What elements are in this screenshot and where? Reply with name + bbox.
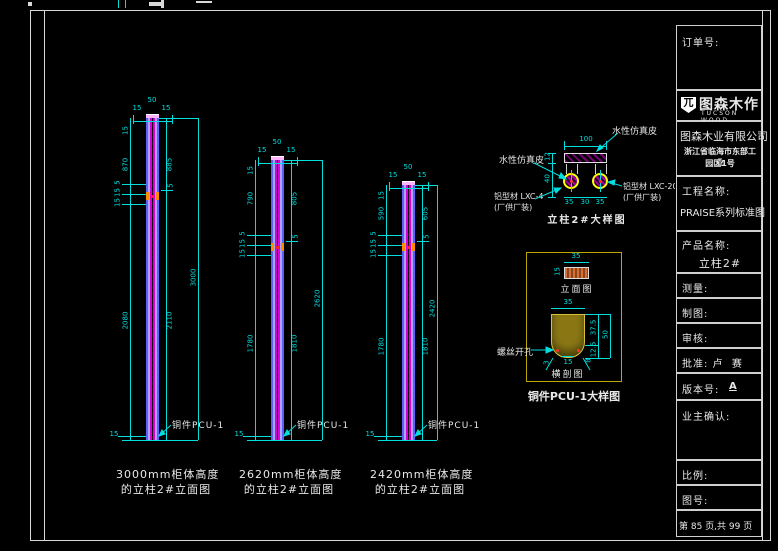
dim-text: 100 xyxy=(571,136,601,143)
dim-text: 15 xyxy=(158,105,174,112)
dim-line xyxy=(130,118,131,440)
column-caption-line2: 的立柱2#立面图 xyxy=(116,483,216,496)
version-value: A xyxy=(729,381,737,392)
column-caption-line2: 的立柱2#立面图 xyxy=(239,483,339,496)
dim-line xyxy=(378,440,437,441)
lxc-left-label2: (厂供厂装) xyxy=(494,202,532,213)
dim-line xyxy=(159,118,198,119)
dim-line xyxy=(255,160,256,440)
dim-text: 870 xyxy=(123,145,130,185)
dim-line xyxy=(322,160,323,440)
edge-artifact xyxy=(161,0,164,8)
dim-text: 15 xyxy=(385,172,401,179)
dim-line xyxy=(585,358,610,359)
dim-text: 15 xyxy=(414,172,430,179)
hardware-callout: 铜件PCU-1 xyxy=(172,418,224,431)
version-label: 版本号: xyxy=(682,381,719,396)
center-dot xyxy=(599,180,602,183)
dim-line xyxy=(374,436,402,437)
product-label: 产品名称: xyxy=(682,237,730,252)
dim-line xyxy=(118,436,146,437)
dim-line xyxy=(133,115,134,124)
survey-box: 测量: xyxy=(676,273,762,298)
dim-line xyxy=(551,308,585,309)
column-body xyxy=(271,160,284,440)
dim-line xyxy=(297,157,298,166)
screw-hole-label: 螺丝开孔 xyxy=(497,345,533,358)
leader-line xyxy=(122,194,146,195)
scale-box: 比例: xyxy=(676,460,762,485)
connector-pcu xyxy=(402,243,415,251)
leader-line xyxy=(247,255,271,256)
dim-line xyxy=(258,157,259,166)
dim-text: 805 xyxy=(292,179,299,219)
dim-text: 2620 xyxy=(315,279,322,319)
dim-text: 1810 xyxy=(292,324,299,364)
leader-line xyxy=(378,235,402,236)
dim-line xyxy=(610,314,611,358)
lxc-right-label: 铝型材 LXC-20 xyxy=(623,181,675,192)
version-box: 版本号: A xyxy=(676,373,762,400)
dim-text: 885 xyxy=(167,145,174,185)
dim-line xyxy=(598,314,599,358)
detail-title: 立柱2#大样图 xyxy=(545,211,629,226)
tucson-logo-icon: 兀 xyxy=(681,97,696,113)
drawing-number-label: 图号: xyxy=(682,492,708,507)
leader-line xyxy=(378,255,402,256)
pcu-title: 铜件PCU-1大样图 xyxy=(526,388,622,404)
logo-box: 兀 图森木作 TUCSON WOOD xyxy=(676,90,762,121)
dim-text: 50 xyxy=(400,164,416,171)
top-plate xyxy=(564,153,607,163)
dim-text: 15 xyxy=(560,359,576,366)
dim-text: 15 xyxy=(283,147,299,154)
dim-text: 790 xyxy=(248,179,255,219)
dim-text: 15 xyxy=(371,234,378,274)
edge-artifact xyxy=(149,2,161,6)
leather-label-left: 水性仿真皮 xyxy=(499,153,544,166)
company-address-line2: 园区1号 xyxy=(681,158,759,169)
lxc-right-label2: (厂供厂装) xyxy=(623,192,675,203)
draft-label: 制图: xyxy=(682,305,708,320)
owner-confirm-box: 业主确认: xyxy=(676,400,762,460)
dim-text: 30 xyxy=(577,199,593,206)
dim-text: 15 xyxy=(254,147,270,154)
column-body xyxy=(146,118,159,440)
product-box: 产品名称: 立柱2# xyxy=(676,231,762,273)
dim-line xyxy=(415,185,437,186)
owner-confirm-label: 业主确认: xyxy=(682,408,730,423)
approve-box: 批准: 卢 赛 xyxy=(676,348,762,373)
dim-text: 15 xyxy=(240,234,247,274)
dim-line xyxy=(247,440,322,441)
project-box: 工程名称: PRAISE系列标准图 xyxy=(676,176,762,231)
leader-line xyxy=(247,235,271,236)
dim-line xyxy=(243,436,271,437)
column-caption-line1: 3000mm柜体高度 xyxy=(116,468,216,481)
column-caption-line2: 的立柱2#立面图 xyxy=(370,483,470,496)
edge-artifact xyxy=(125,0,126,8)
dim-text: 35 xyxy=(556,299,580,306)
dim-line xyxy=(564,262,589,263)
dim-text: 2420 xyxy=(430,289,437,329)
dim-line xyxy=(428,182,429,191)
edge-artifact xyxy=(196,1,212,3)
project-value: PRAISE系列标准图 xyxy=(680,204,765,219)
dim-line xyxy=(198,118,199,440)
sheet-inner-border-left xyxy=(44,10,45,541)
product-value: 立柱2# xyxy=(677,255,763,271)
dim-text: 590 xyxy=(379,194,386,234)
dim-text: 35 xyxy=(592,199,608,206)
pcu-elevation-shape xyxy=(564,267,589,279)
leader-line xyxy=(122,184,146,185)
dim-text: 3000 xyxy=(191,258,198,298)
dim-text: 50 xyxy=(603,315,610,355)
dim-text: 605 xyxy=(423,194,430,234)
dim-text: 40 xyxy=(545,159,552,199)
column-body xyxy=(402,185,415,440)
company-box: 图森木业有限公司 浙江省临海市东部工业 园区1号 xyxy=(676,121,762,176)
dim-text: 2110 xyxy=(167,301,174,341)
sheet-border-bottom xyxy=(30,540,770,541)
dim-text: 1780 xyxy=(379,327,386,367)
dim-text: 15 xyxy=(115,183,122,223)
dim-text: 15 xyxy=(129,105,145,112)
dim-line xyxy=(564,141,565,150)
dim-line xyxy=(564,146,607,147)
column-caption-line1: 2420mm柜体高度 xyxy=(370,468,470,481)
pcu-elevation-label: 立面图 xyxy=(558,282,596,295)
survey-label: 测量: xyxy=(682,280,708,295)
dim-text: 1810 xyxy=(423,327,430,367)
sheet-border-top xyxy=(30,10,770,11)
dim-text: 35 xyxy=(561,199,577,206)
dim-text: 50 xyxy=(269,139,285,146)
sheet-inner-border-right xyxy=(762,10,763,541)
pcu-section-label: 横剖图 xyxy=(548,367,588,380)
drawing-number-box: 图号: xyxy=(676,485,762,510)
dim-line xyxy=(284,160,322,161)
page-box: 第 85 页,共 99 页 xyxy=(676,510,762,537)
lxc-left-label: 铝型材 LXC-4 xyxy=(494,191,543,202)
dim-line xyxy=(552,153,553,197)
order-number-label: 订单号: xyxy=(682,34,719,49)
screw-hole-dot xyxy=(577,349,580,352)
company-name: 图森木业有限公司 xyxy=(680,128,768,144)
approve-label: 批准: 卢 赛 xyxy=(682,355,743,370)
scale-label: 比例: xyxy=(682,467,708,482)
dim-text: 35 xyxy=(560,253,592,260)
leather-label-top: 水性仿真皮 xyxy=(612,124,657,137)
connector-pcu xyxy=(146,192,159,200)
hardware-callout: 铜件PCU-1 xyxy=(428,418,480,431)
leader-line xyxy=(378,245,402,246)
center-dot xyxy=(570,180,573,183)
leader-line xyxy=(122,204,146,205)
connector-pcu xyxy=(271,243,284,251)
column-caption-line1: 2620mm柜体高度 xyxy=(239,468,339,481)
dim-line xyxy=(606,141,607,150)
hardware-callout: 铜件PCU-1 xyxy=(297,418,349,431)
dim-line xyxy=(172,115,173,124)
edge-artifact xyxy=(28,2,32,6)
dim-line xyxy=(437,185,438,440)
order-number-box: 订单号: xyxy=(676,25,762,90)
draft-box: 制图: xyxy=(676,298,762,323)
review-box: 审核: xyxy=(676,323,762,348)
project-label: 工程名称: xyxy=(682,183,730,198)
leader-line xyxy=(247,245,271,246)
dim-line xyxy=(122,440,198,441)
sheet-border-right xyxy=(770,10,771,541)
dim-line xyxy=(386,185,387,440)
cad-sheet: 15 50 15 15 870 2080 5 15 15 5 885 2110 … xyxy=(0,0,778,551)
dim-text: 2080 xyxy=(123,301,130,341)
dim-line xyxy=(389,182,390,191)
sheet-border-left xyxy=(30,10,31,541)
review-label: 审核: xyxy=(682,330,708,345)
dim-text: 1780 xyxy=(248,324,255,364)
screw-hole-dot xyxy=(556,349,559,352)
dim-line xyxy=(562,356,574,357)
page-info: 第 85 页,共 99 页 xyxy=(679,519,752,532)
dim-text: 50 xyxy=(144,97,160,104)
edge-artifact xyxy=(118,0,119,8)
dim-text: 5 xyxy=(293,217,300,257)
dim-text: 12.5 xyxy=(591,330,598,370)
